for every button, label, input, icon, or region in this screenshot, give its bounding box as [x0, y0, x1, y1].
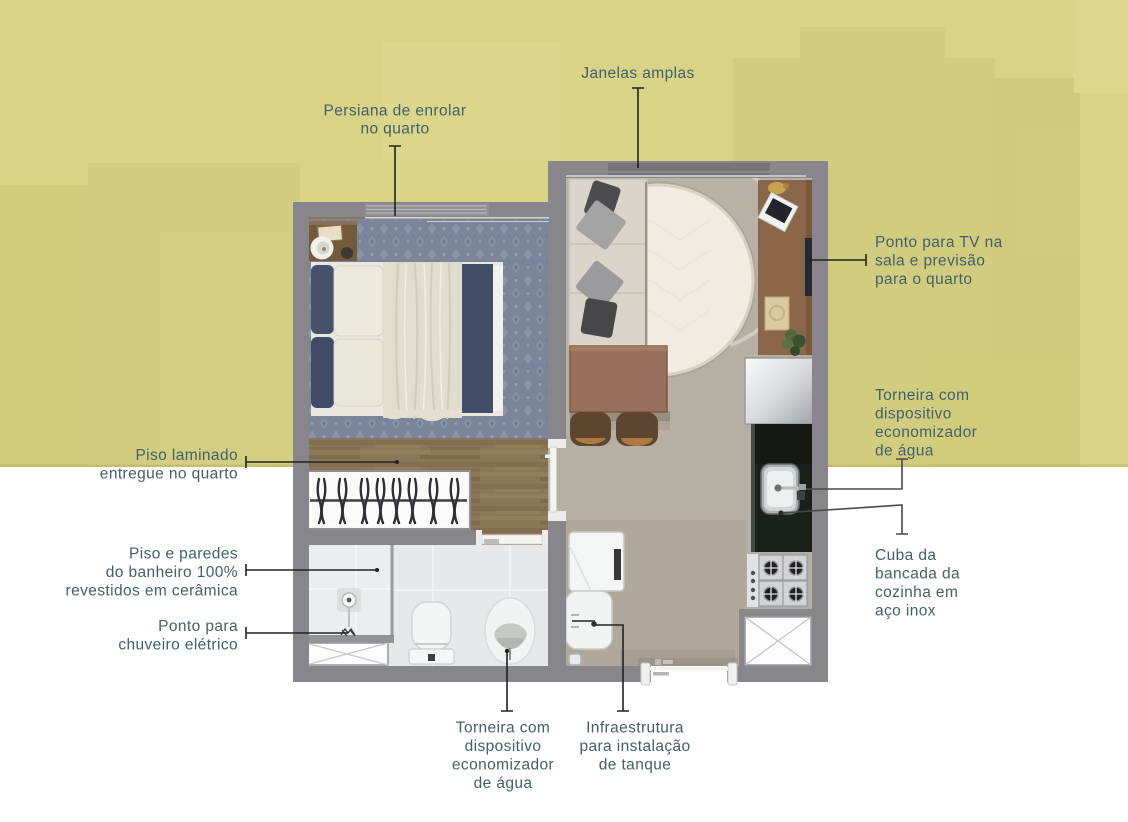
- svg-text:Piso e paredes: Piso e paredes: [129, 546, 238, 563]
- svg-text:de tanque: de tanque: [599, 757, 672, 774]
- svg-text:Janelas amplas: Janelas amplas: [581, 65, 694, 82]
- svg-text:revestidos em cerâmica: revestidos em cerâmica: [66, 583, 238, 600]
- svg-text:Cuba da: Cuba da: [875, 547, 936, 564]
- svg-text:Torneira com: Torneira com: [875, 387, 969, 404]
- svg-text:Torneira com: Torneira com: [456, 720, 550, 737]
- svg-text:Infraestrutura: Infraestrutura: [586, 720, 684, 737]
- svg-text:de água: de água: [474, 775, 533, 792]
- svg-text:no quarto: no quarto: [360, 121, 429, 138]
- svg-text:Ponto para: Ponto para: [158, 618, 238, 635]
- svg-text:sala e previsão: sala e previsão: [875, 253, 985, 270]
- svg-text:Piso laminado: Piso laminado: [135, 447, 238, 464]
- svg-text:economizador: economizador: [875, 424, 977, 441]
- svg-text:aço inox: aço inox: [875, 603, 936, 620]
- svg-text:do banheiro 100%: do banheiro 100%: [106, 564, 238, 581]
- svg-text:economizador: economizador: [452, 757, 554, 774]
- svg-text:para instalação: para instalação: [579, 738, 690, 755]
- svg-text:dispositivo: dispositivo: [875, 406, 952, 423]
- svg-text:Ponto para TV na: Ponto para TV na: [875, 234, 1003, 251]
- svg-text:entregue no quarto: entregue no quarto: [100, 466, 238, 483]
- svg-text:cozinha em: cozinha em: [875, 584, 958, 601]
- svg-text:Persiana de enrolar: Persiana de enrolar: [324, 103, 467, 120]
- svg-text:bancada da: bancada da: [875, 566, 960, 583]
- svg-text:de água: de água: [875, 443, 934, 460]
- svg-text:chuveiro elétrico: chuveiro elétrico: [118, 637, 238, 654]
- svg-text:dispositivo: dispositivo: [465, 738, 542, 755]
- svg-text:para o quarto: para o quarto: [875, 271, 972, 288]
